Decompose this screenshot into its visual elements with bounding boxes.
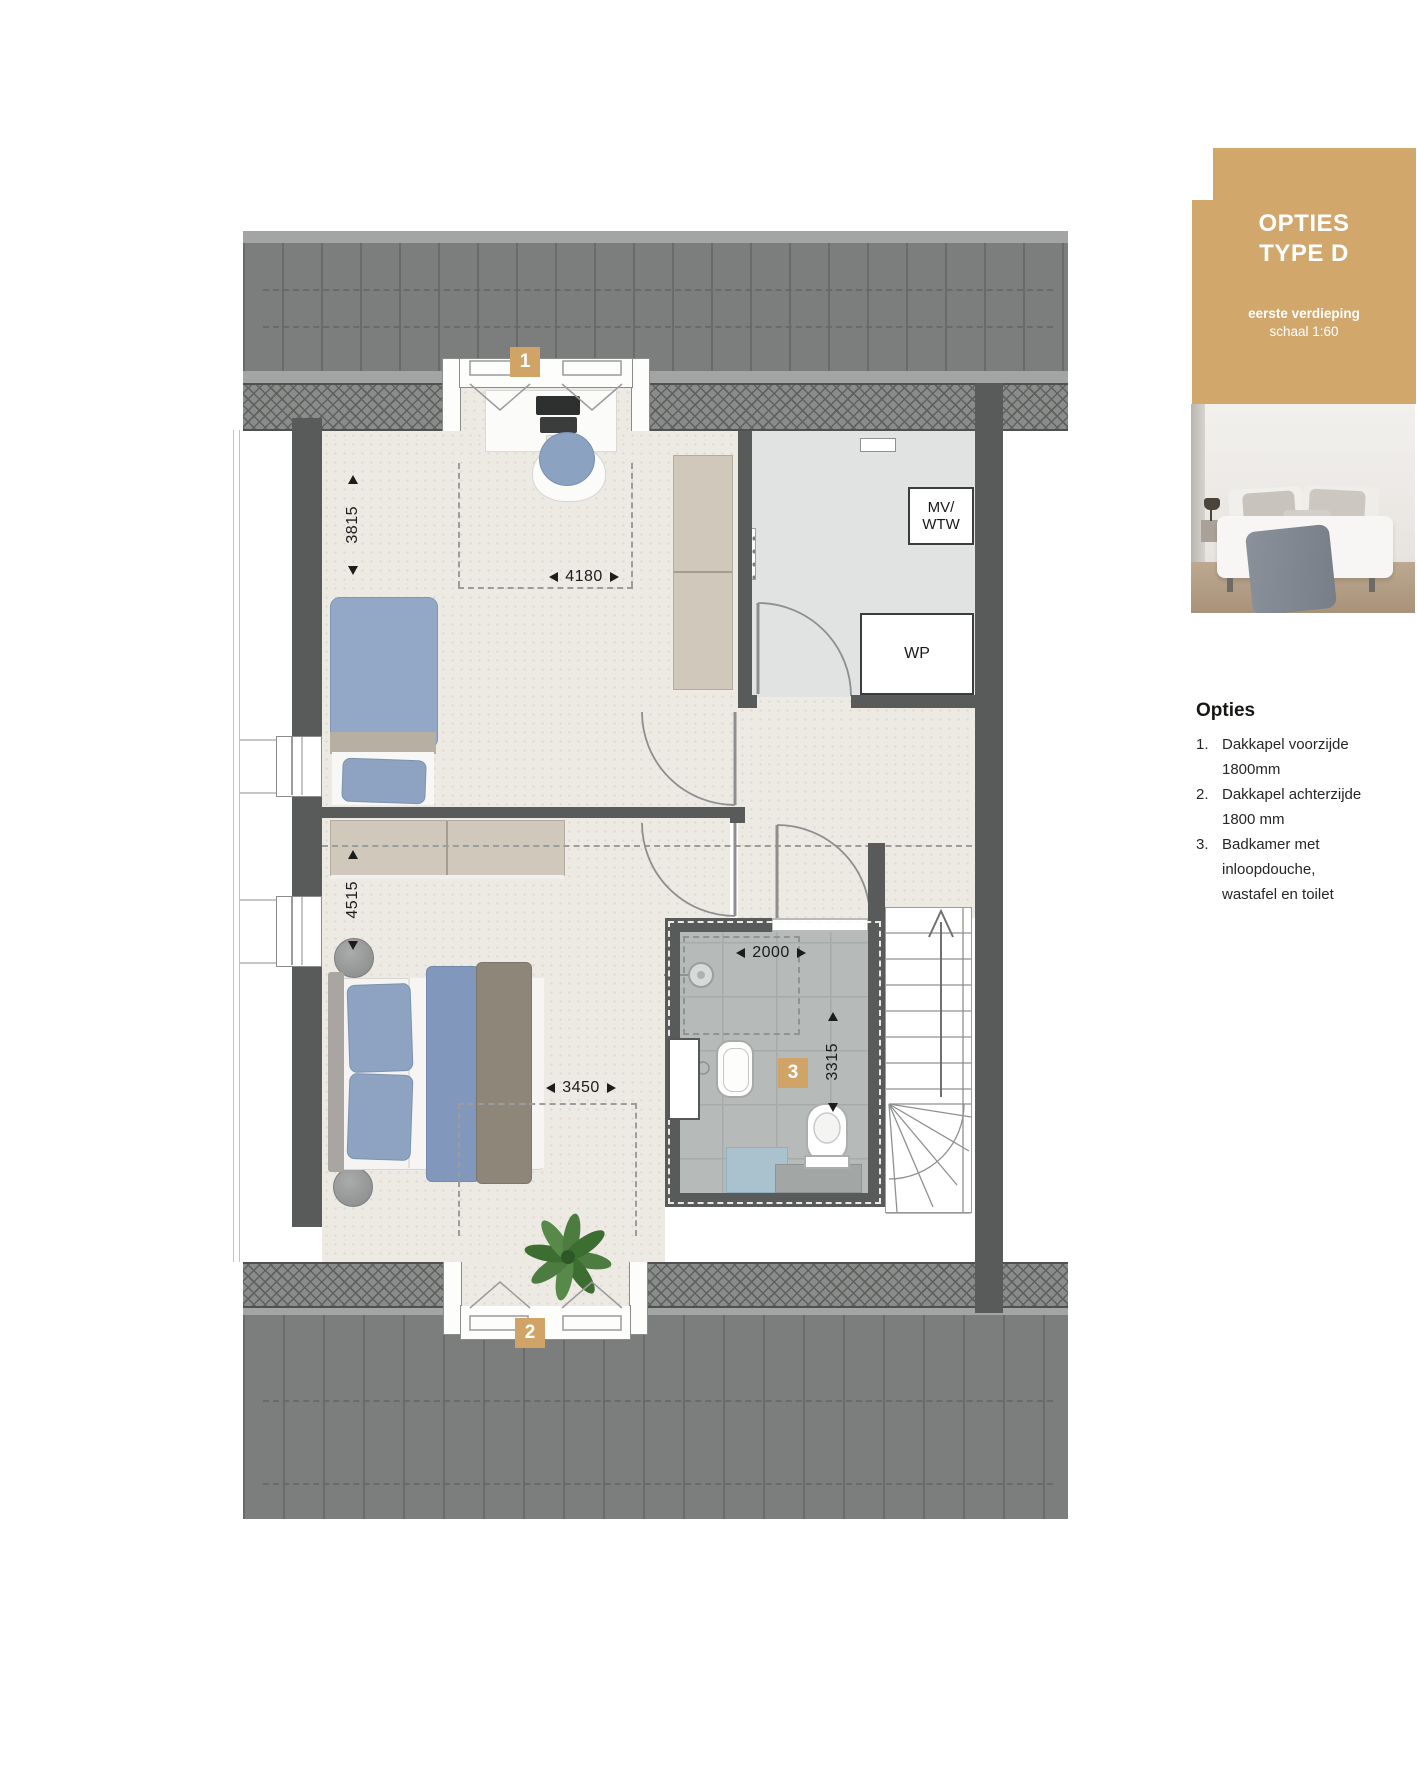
roof-top-battens — [243, 243, 1068, 371]
window-sill-lines — [240, 740, 276, 963]
arrow-right-icon — [797, 948, 806, 958]
dimension-value: 3315 — [824, 1043, 842, 1081]
card-title-line2: TYPE D — [1192, 240, 1416, 268]
eaves-line — [233, 430, 234, 1262]
mv-wtw-label-line1: MV/ — [922, 499, 959, 516]
dimension-bedroom1-depth: 3815 — [338, 475, 368, 575]
wp-label: WP — [904, 645, 930, 663]
option-text: Dakkapel voorzijde 1800mm — [1222, 732, 1349, 782]
roof-dash-line — [263, 326, 1053, 328]
wp-unit: WP — [860, 613, 974, 695]
photo-bed-leg — [1369, 578, 1375, 592]
options-heading: Opties — [1196, 700, 1412, 722]
single-bed-blanket-fold — [330, 732, 436, 754]
dimension-bedroom1-width: 4180 — [538, 566, 630, 588]
window — [276, 736, 322, 797]
arrow-right-icon — [610, 572, 619, 582]
floorplan: MV/ WTW WP 1 2 3 3815 4180 4515 3450 — [0, 0, 1100, 1772]
single-bed-duvet — [330, 597, 438, 749]
options-header-card: OPTIES TYPE D eerste verdieping schaal 1… — [1192, 148, 1416, 404]
roof-bottom-hatch-band — [243, 1262, 1068, 1308]
wall-bathroom-stub — [868, 843, 885, 932]
dimension-value: 4180 — [565, 568, 603, 586]
dimension-bathroom-depth: 3315 — [818, 1012, 848, 1112]
dormer1-window-band — [459, 358, 633, 388]
wall-bedroom-divider — [292, 807, 745, 818]
single-bed-pillow — [341, 758, 426, 805]
wall-left-upper — [292, 418, 322, 736]
roof-dash-line — [263, 1400, 1053, 1402]
arrow-up-icon — [348, 850, 358, 859]
bathroom-niche — [668, 1038, 700, 1120]
roof-bottom-edge — [243, 1308, 1068, 1315]
arrow-left-icon — [546, 1083, 555, 1093]
option-text: Badkamer met inloopdouche, wastafel en t… — [1222, 832, 1334, 907]
arrow-right-icon — [607, 1083, 616, 1093]
arrow-left-icon — [549, 572, 558, 582]
photo-bed-leg — [1227, 578, 1233, 592]
arrow-down-icon — [828, 1103, 838, 1112]
badge-option-2: 2 — [515, 1318, 545, 1348]
option-item-2: 2. Dakkapel achterzijde 1800 mm — [1196, 782, 1412, 832]
staircase-area — [885, 907, 972, 1213]
wall-left-lower — [292, 967, 322, 1227]
bedroom-photo — [1191, 404, 1415, 613]
badge-option-1: 1 — [510, 347, 540, 377]
option-line: inloopdouche, — [1222, 861, 1315, 878]
badge-3-number: 3 — [788, 1062, 799, 1084]
roof-top-ridge — [243, 231, 1068, 243]
dimension-value: 4515 — [344, 881, 362, 919]
arrow-down-icon — [348, 941, 358, 950]
dormer1-guide-right — [631, 463, 633, 587]
option-text: Dakkapel achterzijde 1800 mm — [1222, 782, 1361, 832]
card-title-line1: OPTIES — [1192, 210, 1416, 238]
double-bed-blue-blanket — [426, 966, 480, 1182]
option-line: Badkamer met — [1222, 836, 1320, 853]
option-item-3: 3. Badkamer met inloopdouche, wastafel e… — [1196, 832, 1412, 907]
option-line: 1800mm — [1222, 761, 1280, 778]
card-subtitle-bold: eerste verdieping — [1192, 306, 1416, 321]
option-line: wastafel en toilet — [1222, 886, 1334, 903]
roof-top-hatch-band — [243, 383, 1068, 431]
window — [276, 896, 322, 967]
mv-wtw-unit: MV/ WTW — [908, 487, 974, 545]
dimension-bedroom2-depth: 4515 — [338, 850, 368, 950]
dormer2-guide-left — [458, 1103, 460, 1236]
desk-chair-seat — [539, 432, 595, 486]
roof-dash-line — [263, 1483, 1053, 1485]
dormer1-guide-left — [458, 463, 460, 587]
dormer2-guide-right — [635, 1103, 637, 1236]
dormer2-window-band — [460, 1305, 631, 1340]
wall-tech-bottom-right — [851, 695, 975, 708]
dimension-bathroom-width: 2000 — [725, 942, 817, 964]
roof-bottom-battens — [243, 1315, 1068, 1519]
laptop-keyboard — [540, 417, 577, 433]
roof-dash-line — [263, 289, 1053, 291]
photo-blanket — [1245, 524, 1337, 613]
page: MV/ WTW WP 1 2 3 3815 4180 4515 3450 — [0, 0, 1417, 1772]
option-number: 3. — [1196, 832, 1222, 907]
badge-option-3: 3 — [778, 1058, 808, 1088]
photo-lamp-shade — [1204, 498, 1220, 510]
option-number: 1. — [1196, 732, 1222, 782]
arrow-left-icon — [736, 948, 745, 958]
double-bed-throw — [476, 962, 532, 1184]
bedroom1-wardrobe — [673, 455, 733, 690]
double-bed-pillow — [347, 1073, 414, 1161]
arrow-up-icon — [828, 1012, 838, 1021]
option-line: Dakkapel voorzijde — [1222, 736, 1349, 753]
option-item-1: 1. Dakkapel voorzijde 1800mm — [1196, 732, 1412, 782]
option-line: 1800 mm — [1222, 811, 1285, 828]
dimension-bedroom2-width: 3450 — [535, 1077, 627, 1099]
dormer2-guide-top — [458, 1103, 637, 1105]
badge-1-number: 1 — [520, 351, 531, 373]
card-subtitle: schaal 1:60 — [1192, 324, 1416, 339]
option-number: 2. — [1196, 782, 1222, 832]
badge-2-number: 2 — [525, 1322, 536, 1344]
roof-top-edge — [243, 371, 1068, 383]
double-bed-headboard — [328, 972, 344, 1172]
double-bed-pillow — [346, 983, 413, 1073]
wall-tech-bottom-left — [738, 695, 757, 708]
eaves-line — [239, 430, 240, 1262]
wall-right — [975, 383, 1003, 1313]
hall-floor — [738, 697, 975, 918]
dimension-value: 3450 — [562, 1079, 600, 1097]
option-line: Dakkapel achterzijde — [1222, 786, 1361, 803]
pouf — [333, 1167, 373, 1207]
vent-grille — [860, 438, 896, 452]
wall-hall-upper — [730, 807, 745, 823]
laptop-screen — [536, 396, 580, 415]
options-panel: Opties 1. Dakkapel voorzijde 1800mm 2. D… — [1196, 700, 1412, 907]
arrow-up-icon — [348, 475, 358, 484]
mv-wtw-label-line2: WTW — [922, 516, 959, 533]
dimension-value: 2000 — [752, 944, 790, 962]
dimension-value: 3815 — [344, 506, 362, 544]
wall-tech-left — [738, 431, 752, 697]
arrow-down-icon — [348, 566, 358, 575]
